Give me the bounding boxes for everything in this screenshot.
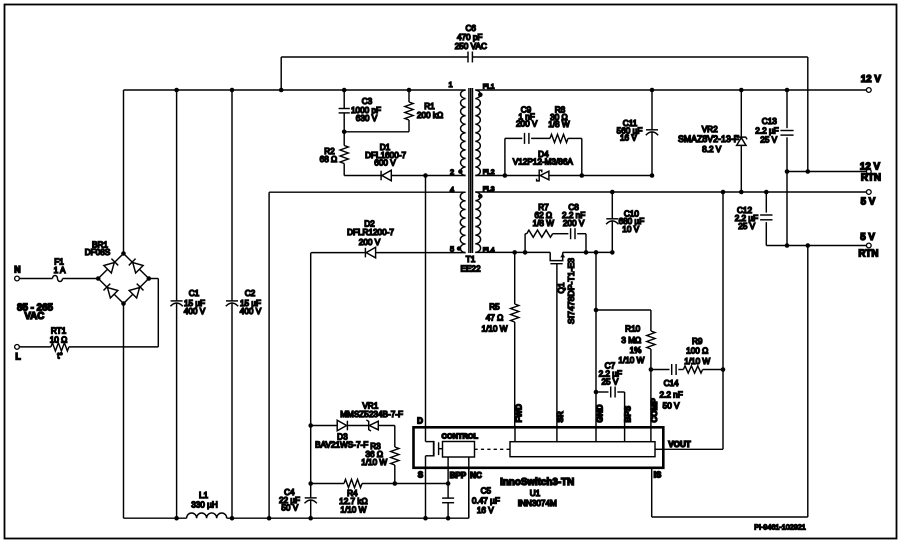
svg-text:1%: 1% [630, 346, 642, 355]
svg-text:R5: R5 [489, 302, 500, 311]
svg-text:IS: IS [654, 471, 662, 480]
svg-text:CONTROL: CONTROL [442, 432, 479, 441]
svg-text:12 V: 12 V [860, 161, 881, 172]
svg-text:2.2 nF: 2.2 nF [659, 391, 682, 400]
svg-text:1/10 W: 1/10 W [340, 505, 366, 514]
svg-text:RTN: RTN [861, 173, 881, 184]
svg-text:MMSZ5234B-7-F: MMSZ5234B-7-F [340, 410, 403, 419]
svg-text:C6: C6 [465, 24, 476, 33]
svg-text:RT1: RT1 [51, 327, 67, 336]
svg-text:200 V: 200 V [563, 219, 585, 228]
svg-text:InnoSwitch3-TN: InnoSwitch3-TN [500, 477, 574, 488]
svg-text:Q1: Q1 [557, 282, 566, 293]
svg-text:1: 1 [448, 80, 452, 89]
svg-text:R1: R1 [424, 102, 435, 111]
svg-text:200 kΩ: 200 kΩ [417, 111, 443, 120]
svg-text:SMAZ8V2-13-F: SMAZ8V2-13-F [678, 134, 740, 144]
svg-text:4: 4 [450, 185, 454, 194]
svg-text:470 pF: 470 pF [457, 33, 483, 42]
svg-text:1/8 W: 1/8 W [548, 120, 570, 129]
svg-text:D2: D2 [364, 219, 375, 228]
svg-text:25 V: 25 V [738, 222, 755, 231]
svg-text:C2: C2 [245, 289, 256, 298]
svg-text:N: N [14, 265, 20, 275]
svg-text:C3: C3 [362, 97, 373, 106]
svg-text:FL1: FL1 [483, 83, 495, 90]
svg-text:25 V: 25 V [601, 377, 618, 386]
svg-text:L: L [15, 352, 21, 362]
svg-text:VAC: VAC [24, 311, 44, 322]
svg-text:C14: C14 [664, 379, 679, 388]
svg-text:68 Ω: 68 Ω [320, 155, 338, 164]
svg-text:C1: C1 [189, 289, 200, 298]
svg-text:1/10 W: 1/10 W [482, 325, 508, 334]
svg-text:BAV21WS-7-F: BAV21WS-7-F [315, 441, 368, 450]
svg-text:47 Ω: 47 Ω [486, 314, 504, 323]
svg-text:R9: R9 [692, 337, 703, 346]
svg-text:5 V: 5 V [861, 197, 876, 208]
svg-text:GND: GND [596, 404, 605, 422]
svg-text:16 V: 16 V [620, 133, 637, 142]
svg-text:T1: T1 [466, 255, 476, 264]
svg-text:200 V: 200 V [516, 119, 538, 128]
svg-text:630 V: 630 V [356, 114, 378, 123]
svg-text:DFLR1200-7: DFLR1200-7 [347, 228, 394, 237]
svg-text:FWD: FWD [515, 404, 524, 423]
svg-text:400 V: 400 V [240, 307, 262, 316]
svg-text:10 Ω: 10 Ω [50, 336, 68, 345]
svg-text:330 µH: 330 µH [191, 500, 218, 509]
svg-text:VR2: VR2 [702, 125, 718, 134]
svg-text:600 V: 600 V [374, 158, 396, 167]
svg-text:16 V: 16 V [477, 506, 494, 515]
svg-text:C13: C13 [762, 117, 777, 126]
svg-text:DF08S: DF08S [85, 248, 111, 257]
svg-text:5: 5 [450, 244, 454, 253]
svg-text:8.2 V: 8.2 V [702, 145, 722, 154]
svg-text:INN3074M: INN3074M [518, 499, 557, 508]
svg-text:V12P12-M3/86A: V12P12-M3/86A [513, 157, 574, 166]
svg-text:25 V: 25 V [760, 136, 777, 145]
svg-text:100 Ω: 100 Ω [686, 347, 708, 356]
svg-text:VOUT: VOUT [668, 440, 691, 449]
svg-text:1 A: 1 A [54, 266, 66, 275]
svg-text:PI-9461-102921: PI-9461-102921 [754, 523, 806, 532]
svg-text:1/10 W: 1/10 W [684, 357, 710, 366]
svg-text:3 MΩ: 3 MΩ [621, 336, 641, 345]
svg-text:F1: F1 [54, 258, 64, 267]
svg-text:t°: t° [57, 352, 63, 361]
svg-text:50 V: 50 V [281, 503, 298, 512]
svg-text:2: 2 [450, 168, 454, 177]
svg-text:D: D [417, 416, 423, 425]
svg-text:1/8 W: 1/8 W [533, 219, 555, 228]
svg-text:5 V: 5 V [860, 232, 875, 243]
svg-text:50 V: 50 V [663, 402, 680, 411]
svg-text:R10: R10 [625, 325, 640, 334]
svg-text:1/10 W: 1/10 W [618, 356, 644, 365]
svg-text:U1: U1 [530, 489, 541, 498]
svg-text:10 V: 10 V [622, 225, 639, 234]
svg-text:250 VAC: 250 VAC [455, 42, 487, 51]
svg-text:12 V: 12 V [861, 74, 882, 85]
svg-text:BPP: BPP [450, 471, 467, 480]
svg-text:NC: NC [470, 471, 482, 480]
svg-text:400 V: 400 V [184, 307, 206, 316]
svg-text:C5: C5 [481, 487, 492, 496]
svg-text:SI7478DP-T1-E3: SI7478DP-T1-E3 [566, 258, 576, 324]
svg-text:L1: L1 [199, 491, 209, 500]
svg-text:0.47 µF: 0.47 µF [472, 497, 500, 506]
svg-text:S: S [418, 471, 424, 480]
svg-text:RTN: RTN [858, 249, 878, 260]
svg-text:200 V: 200 V [359, 238, 381, 247]
svg-text:1/10 W: 1/10 W [361, 458, 387, 467]
svg-text:EE22: EE22 [460, 265, 480, 274]
svg-text:2.2 µF: 2.2 µF [755, 127, 778, 136]
